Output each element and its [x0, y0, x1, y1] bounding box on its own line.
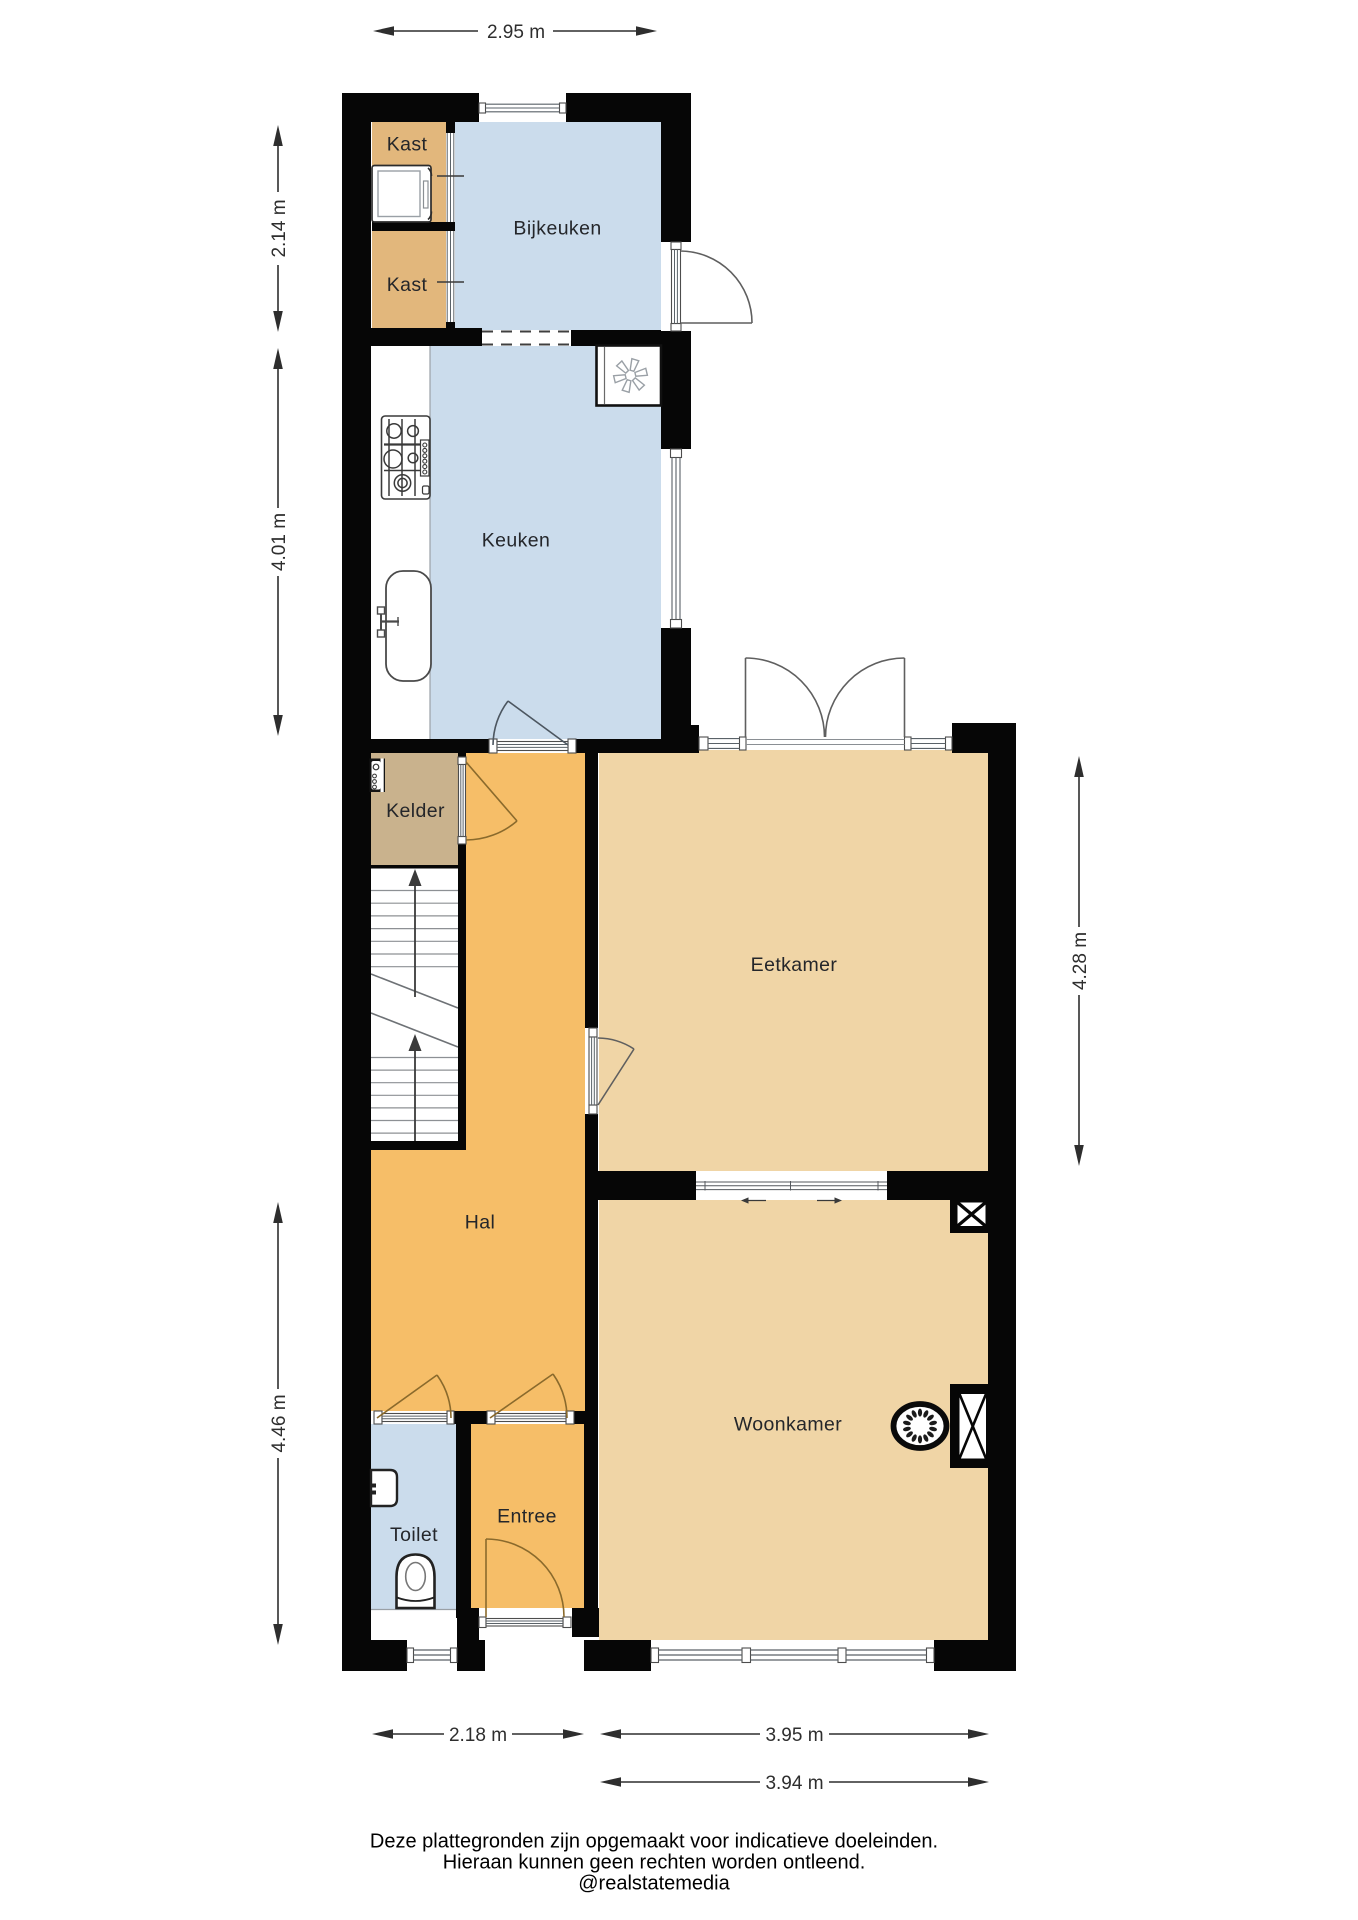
svg-text:Hal: Hal: [465, 1212, 495, 1234]
svg-text:Deze plattegronden zijn opgema: Deze plattegronden zijn opgemaakt voor i…: [370, 1831, 938, 1853]
svg-text:4.01 m: 4.01 m: [269, 513, 290, 571]
svg-text:@realstatemedia: @realstatemedia: [578, 1873, 730, 1895]
svg-text:Keuken: Keuken: [482, 530, 551, 552]
svg-text:Woonkamer: Woonkamer: [734, 1414, 842, 1436]
svg-text:2.95 m: 2.95 m: [487, 22, 545, 43]
svg-text:2.18 m: 2.18 m: [449, 1725, 507, 1746]
svg-text:3.94 m: 3.94 m: [765, 1773, 823, 1794]
svg-text:3.95 m: 3.95 m: [765, 1725, 823, 1746]
svg-text:Kelder: Kelder: [386, 800, 445, 822]
svg-text:2.14 m: 2.14 m: [269, 199, 290, 257]
svg-text:Eetkamer: Eetkamer: [751, 954, 838, 976]
svg-text:Toilet: Toilet: [390, 1524, 438, 1546]
svg-text:Kast: Kast: [387, 274, 428, 296]
svg-text:4.28 m: 4.28 m: [1070, 932, 1091, 990]
svg-text:4.46 m: 4.46 m: [269, 1394, 290, 1452]
svg-text:Bijkeuken: Bijkeuken: [513, 218, 601, 240]
svg-text:Kast: Kast: [387, 134, 428, 156]
svg-text:Entree: Entree: [497, 1506, 557, 1528]
svg-text:Hieraan kunnen geen rechten wo: Hieraan kunnen geen rechten worden ontle…: [443, 1852, 866, 1874]
